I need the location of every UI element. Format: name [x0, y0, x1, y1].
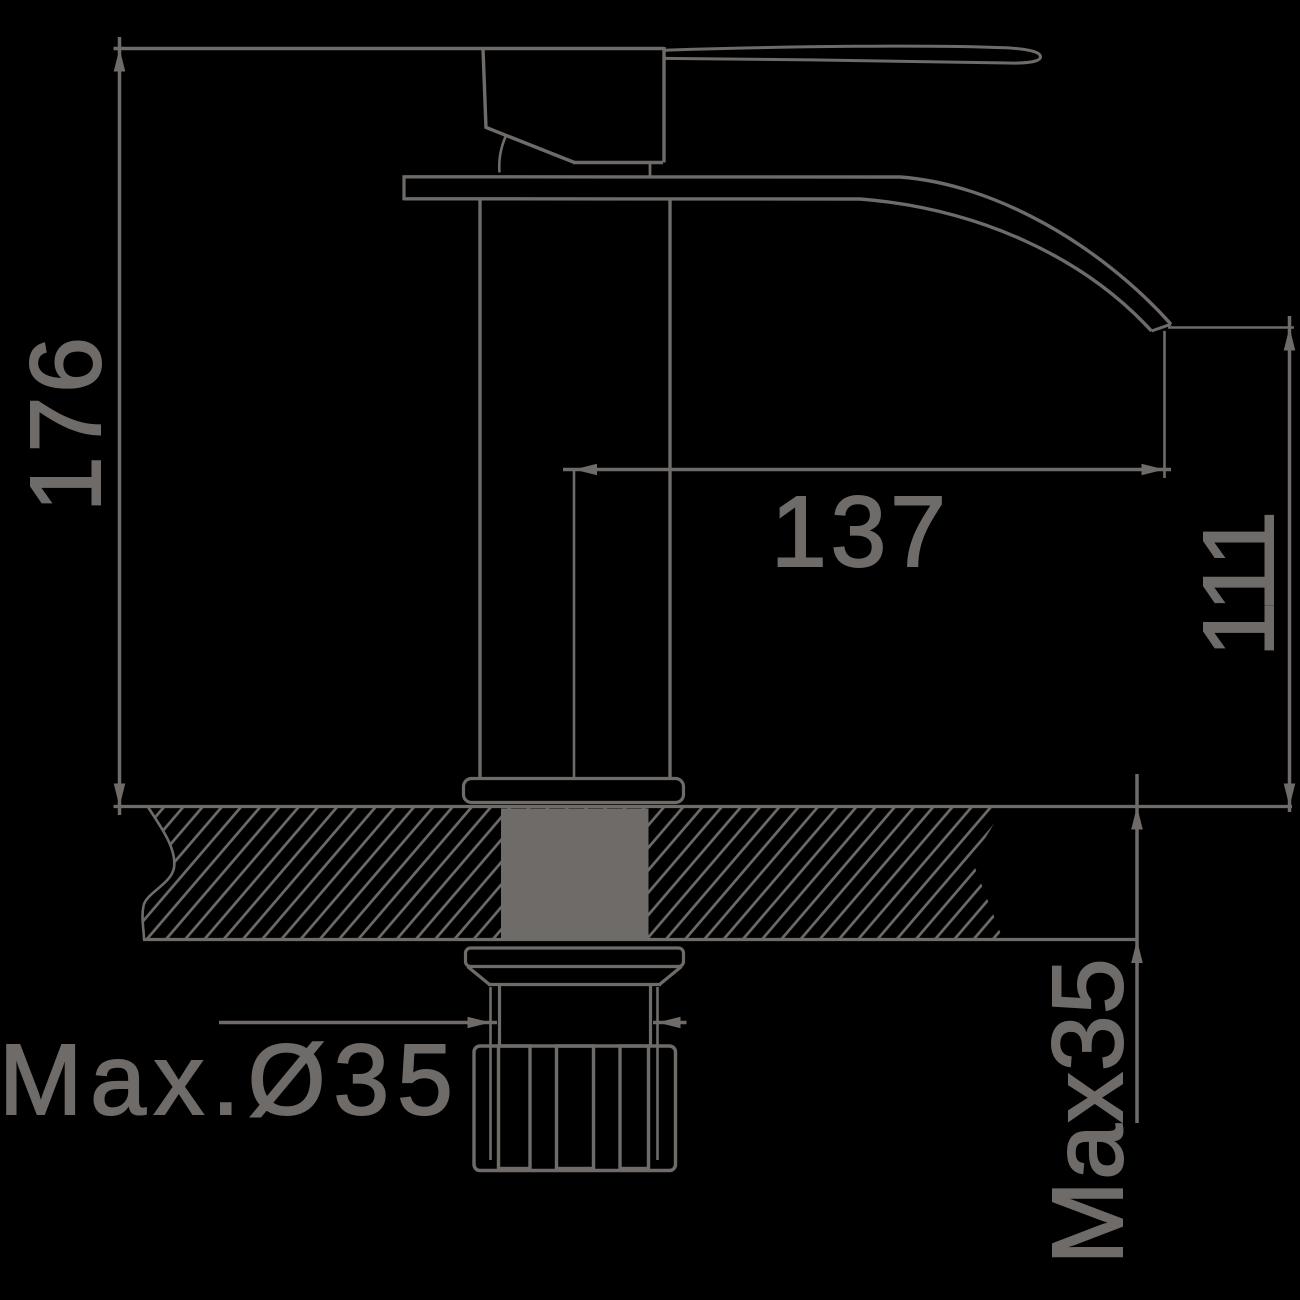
svg-text:137: 137 [771, 476, 950, 588]
svg-text:176: 176 [10, 333, 122, 512]
svg-text:111: 111 [1183, 514, 1295, 657]
svg-text:Max.Ø35: Max.Ø35 [0, 1024, 461, 1136]
svg-text:Max35: Max35 [1032, 957, 1144, 1265]
